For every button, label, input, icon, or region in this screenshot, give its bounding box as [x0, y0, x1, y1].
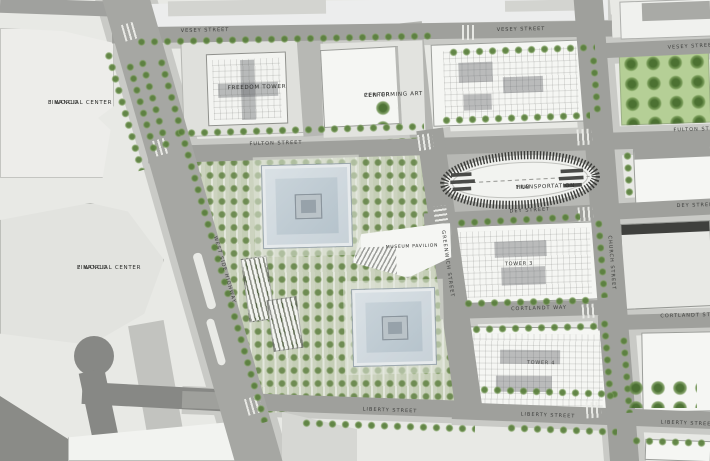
memorial-north-pool [261, 163, 353, 249]
label-pac-line2: CENTER [364, 91, 391, 101]
building-dey-cortlandt-east [620, 220, 710, 310]
tower-3-core-2 [501, 266, 546, 286]
crosswalk-fulton-greenwich [417, 133, 434, 151]
tree-single-pac-corner [372, 98, 398, 124]
transportation-hub-oval [437, 146, 604, 215]
site-plan-map: VESEY STREET VESEY STREET VESEY STREET F… [0, 0, 710, 461]
street-label-vesey-west: VESEY STREET [181, 28, 230, 34]
memorial-south-pool [351, 287, 437, 367]
tree-col-fulton-dey-west [621, 150, 638, 201]
building-fulton-dey-east [633, 142, 710, 203]
building-north-roof-1 [168, 0, 326, 16]
label-tower-4: TOWER 4 [527, 359, 555, 368]
crosswalk-greenwich-dey [433, 205, 448, 222]
label-wfc3-line2: FINANCIAL CENTER [48, 99, 112, 108]
crosswalk-cortlandt-church [582, 304, 597, 319]
tower-2-core-3 [463, 94, 492, 111]
crosswalk-fulton-church [576, 128, 592, 145]
north-pool-void [295, 194, 323, 220]
park-lawn [619, 50, 710, 125]
tree-cluster-tower4-east [625, 378, 697, 408]
tower-2-core-1 [458, 62, 493, 83]
tower-2-core-2 [503, 76, 544, 93]
south-pool-void [382, 316, 409, 341]
tower-3-core-1 [494, 240, 547, 258]
label-wfc2-line2: FINANCIAL CENTER [77, 264, 141, 273]
building-dey-cortlandt-roof [621, 221, 709, 235]
crosswalk-vesey-mid [462, 25, 474, 40]
building-northeast-corner-roof [642, 1, 710, 21]
street-label-dey-east: DEY STREET [677, 203, 710, 209]
street-label-vesey-mid: VESEY STREET [497, 27, 546, 33]
label-tower-3: TOWER 3 [505, 260, 533, 269]
label-hub-line2: HUB [516, 184, 530, 193]
crosswalk-liberty-church [585, 401, 601, 418]
road-corner-wedge [0, 396, 72, 461]
label-freedom-tower: FREEDOM TOWER [228, 83, 287, 93]
